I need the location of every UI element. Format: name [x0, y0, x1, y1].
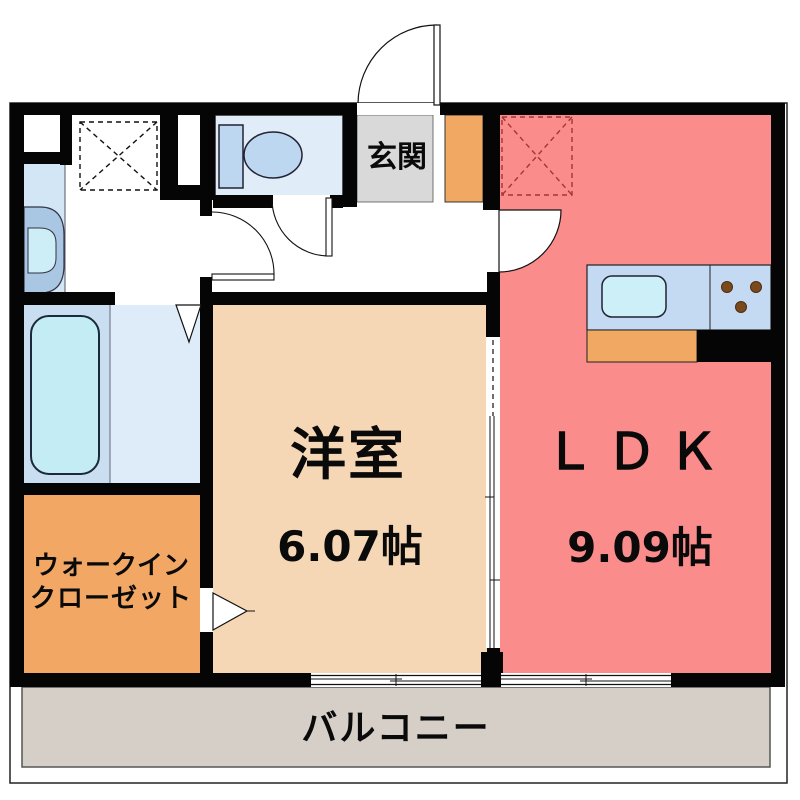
kitchen-cabinet — [587, 330, 697, 362]
washbasin-vanity — [22, 163, 65, 293]
washroom-door — [212, 212, 274, 280]
entrance-label: 玄関 — [347, 143, 447, 173]
ldk-area: 9.09帖 — [515, 527, 765, 569]
floorplan-drawing — [0, 0, 800, 800]
floorplan-image: 玄関 洋室 6.07帖 ＬＤＫ 9.09帖 ウォークイン クローゼット バルコニ… — [0, 0, 800, 800]
balcony-label: バルコニー — [246, 711, 546, 747]
bathroom — [22, 305, 200, 483]
sliding-door — [485, 337, 500, 648]
walk-in-closet-label-line1: ウォークイン — [24, 553, 198, 579]
bathtub-fixture — [31, 316, 99, 474]
balcony-window-western — [311, 673, 481, 687]
toilet-room — [215, 115, 343, 197]
western-room-label: 洋室 — [238, 428, 458, 484]
washing-machine-space — [80, 122, 157, 190]
kitchen-sink — [602, 276, 666, 317]
western-room-area: 6.07帖 — [225, 526, 475, 568]
ldk-label: ＬＤＫ — [505, 427, 770, 477]
ldk-room — [500, 115, 771, 673]
shoe-cabinet — [445, 115, 483, 202]
western-room — [213, 305, 487, 673]
walk-in-closet-label-line2: クローゼット — [24, 586, 198, 612]
toilet-door — [272, 195, 332, 256]
balcony-window-ldk — [501, 673, 671, 687]
entrance-door — [357, 25, 440, 115]
